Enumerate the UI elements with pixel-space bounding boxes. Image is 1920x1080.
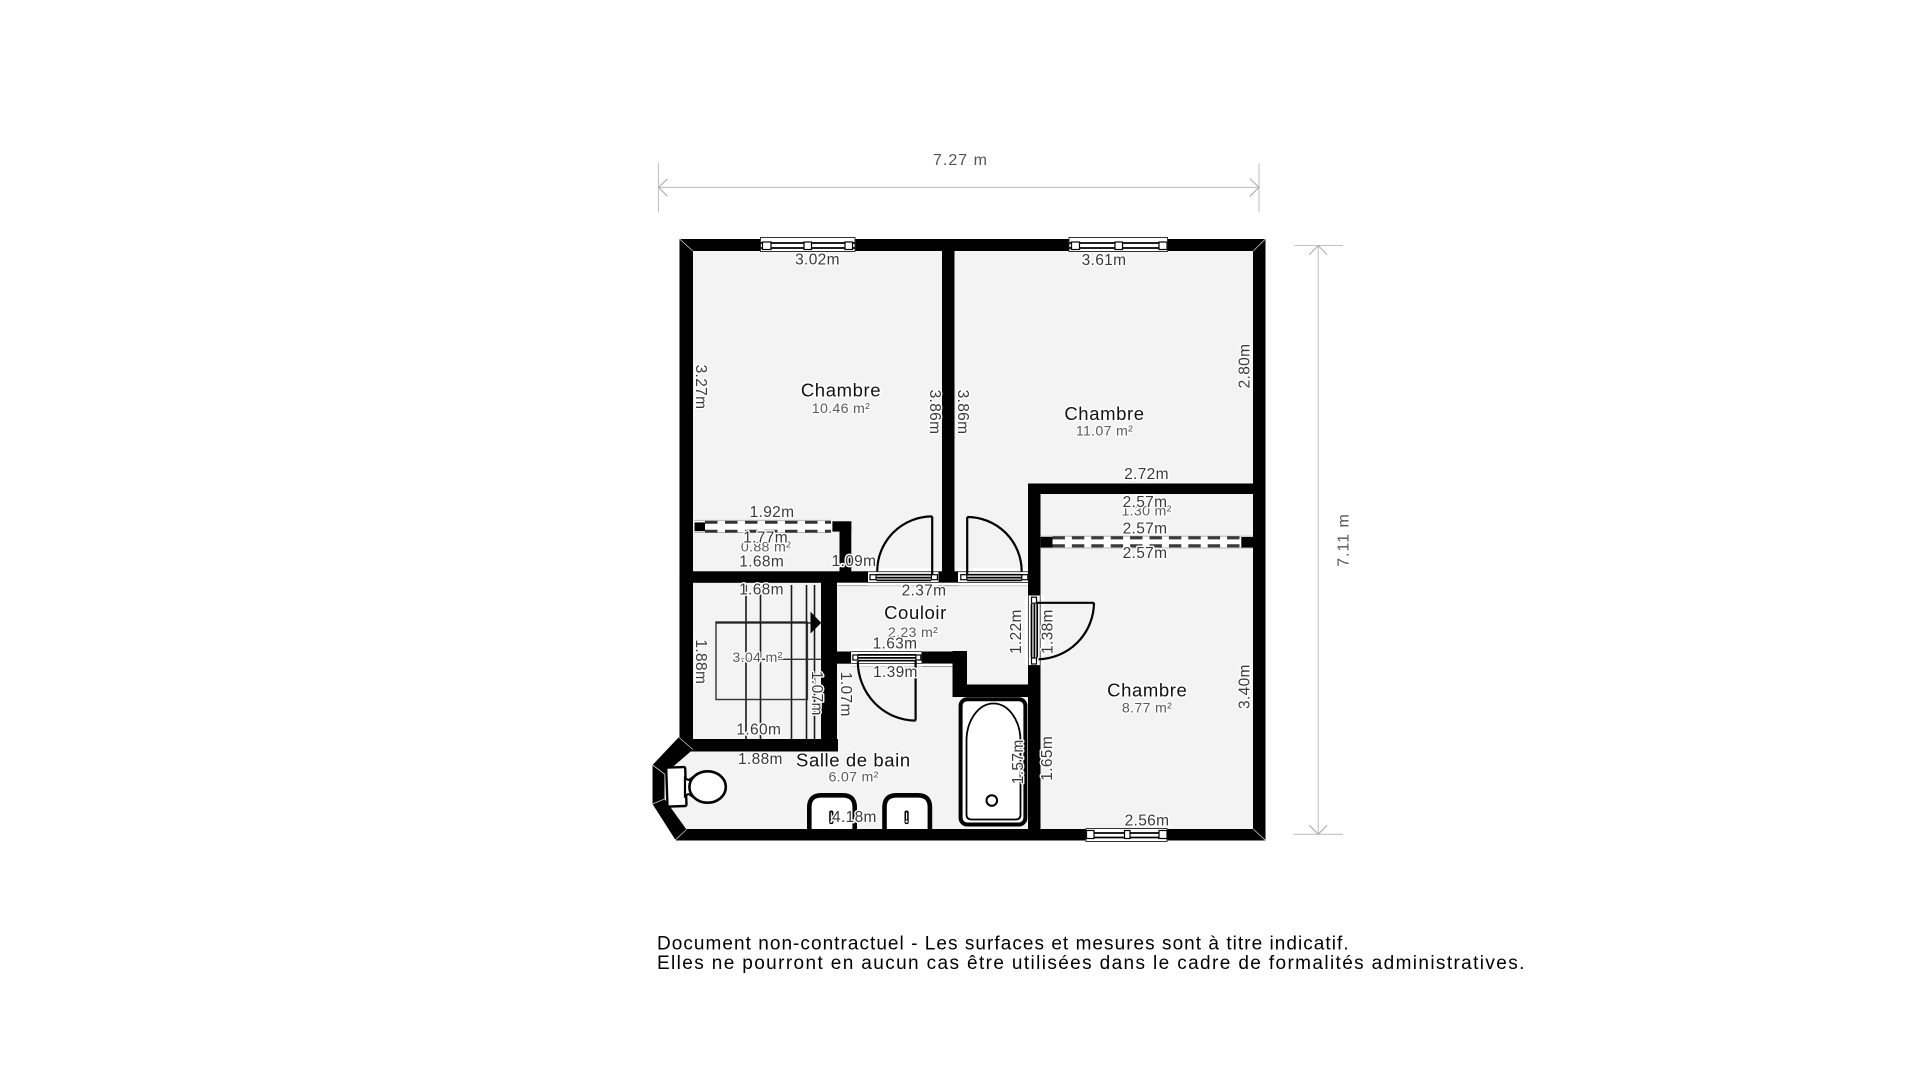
svg-text:4.18m: 4.18m [832, 809, 877, 826]
svg-text:2.57m: 2.57m [1123, 545, 1168, 562]
svg-text:7.11 m: 7.11 m [1336, 513, 1353, 567]
svg-text:Document non-contractuel - Les: Document non-contractuel - Les surfaces … [657, 933, 1350, 954]
svg-text:8.77 m²: 8.77 m² [1122, 701, 1172, 717]
svg-text:2.57m: 2.57m [1123, 494, 1168, 511]
svg-text:1.09m: 1.09m [832, 553, 877, 570]
svg-text:1.88m: 1.88m [738, 751, 783, 768]
svg-text:7.27 m: 7.27 m [933, 152, 988, 169]
svg-text:3.27m: 3.27m [692, 365, 709, 410]
svg-text:3.61m: 3.61m [1082, 252, 1127, 269]
svg-text:1.57m: 1.57m [1010, 739, 1027, 784]
svg-text:2.72m: 2.72m [1124, 466, 1169, 483]
svg-text:3.04 m²: 3.04 m² [732, 650, 782, 666]
svg-text:10.46 m²: 10.46 m² [812, 401, 870, 417]
svg-text:1.63m: 1.63m [873, 635, 918, 652]
svg-text:3.86m: 3.86m [954, 390, 971, 435]
svg-text:2.80m: 2.80m [1237, 344, 1254, 389]
svg-text:1.07m: 1.07m [837, 672, 854, 717]
svg-text:1.39m: 1.39m [873, 664, 918, 681]
svg-text:1.92m: 1.92m [750, 504, 795, 521]
svg-text:1.77m: 1.77m [743, 530, 788, 547]
svg-text:11.07 m²: 11.07 m² [1076, 424, 1133, 440]
svg-text:1.65m: 1.65m [1039, 736, 1056, 781]
svg-text:2.56m: 2.56m [1125, 812, 1170, 829]
svg-text:1.60m: 1.60m [736, 721, 781, 738]
svg-text:1.88m: 1.88m [692, 639, 709, 684]
svg-text:1.07m: 1.07m [808, 671, 825, 716]
svg-text:1.68m: 1.68m [739, 582, 784, 599]
svg-text:Couloir: Couloir [884, 602, 947, 623]
svg-text:2.57m: 2.57m [1123, 521, 1168, 538]
svg-text:1.22m: 1.22m [1008, 609, 1025, 654]
svg-text:3.02m: 3.02m [795, 251, 840, 268]
svg-text:1.38m: 1.38m [1040, 609, 1057, 654]
svg-text:6.07 m²: 6.07 m² [828, 770, 878, 786]
svg-text:1.68m: 1.68m [739, 554, 784, 571]
svg-text:Chambre: Chambre [1064, 403, 1144, 424]
svg-text:Chambre: Chambre [1107, 680, 1187, 701]
svg-text:Salle de bain: Salle de bain [796, 750, 911, 771]
svg-text:Elles ne pourront en aucun cas: Elles ne pourront en aucun cas être util… [657, 953, 1526, 974]
svg-text:Chambre: Chambre [801, 380, 881, 401]
svg-text:2.37m: 2.37m [902, 583, 947, 600]
svg-text:3.40m: 3.40m [1237, 664, 1254, 709]
svg-text:3.86m: 3.86m [926, 390, 943, 435]
